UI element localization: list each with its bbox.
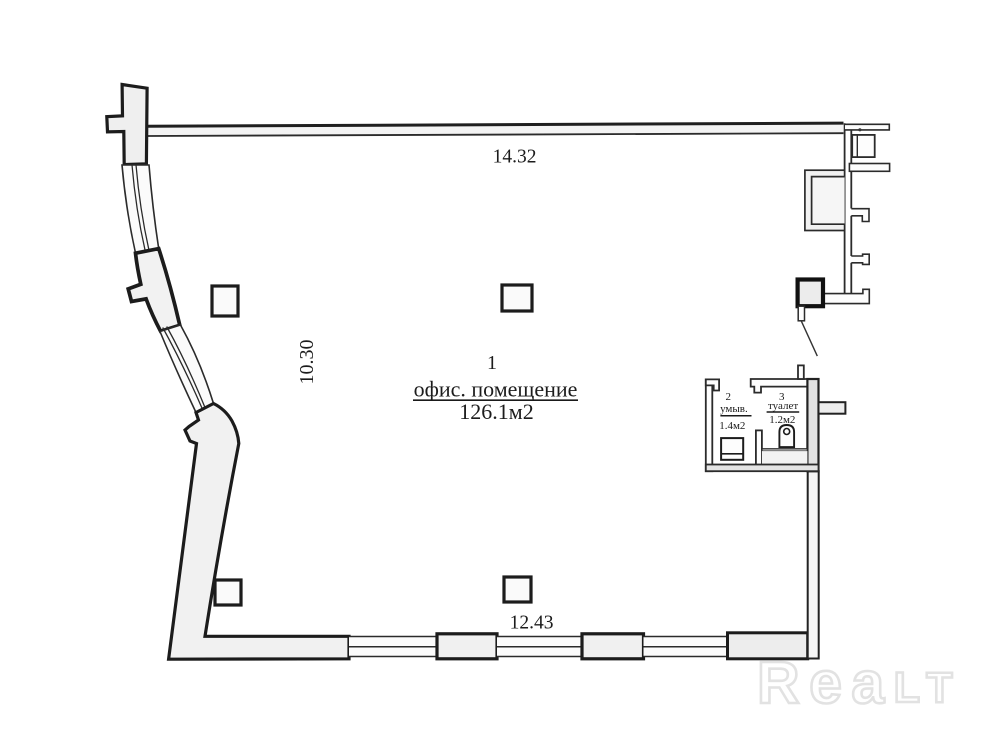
svg-text:12.43: 12.43 — [510, 613, 554, 634]
svg-text:10.30: 10.30 — [296, 340, 318, 385]
svg-text:умыв.: умыв. — [720, 403, 748, 415]
svg-text:1: 1 — [487, 352, 497, 374]
svg-text:1.4м2: 1.4м2 — [719, 420, 745, 432]
svg-text:14.32: 14.32 — [493, 147, 537, 168]
svg-text:туалет: туалет — [768, 400, 798, 412]
svg-text:126.1м2: 126.1м2 — [459, 399, 533, 424]
svg-text:офис. помещение: офис. помещение — [414, 377, 578, 402]
svg-text:ReaLT: ReaLT — [757, 650, 962, 716]
svg-text:1.2м2: 1.2м2 — [769, 414, 795, 426]
svg-text:2: 2 — [726, 391, 732, 403]
